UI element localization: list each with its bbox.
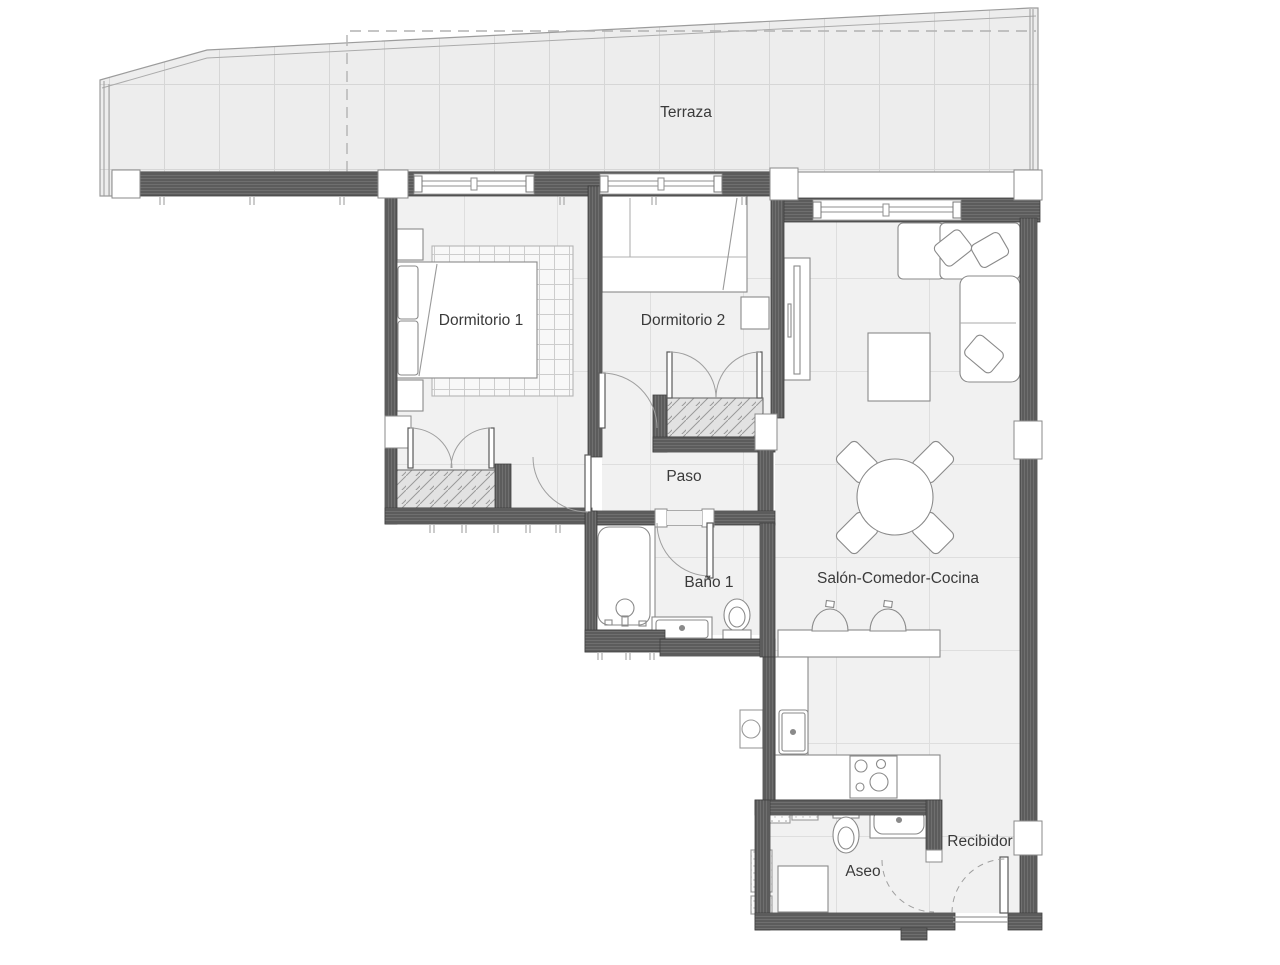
wardrobe-dormitorio-1 [393, 470, 503, 508]
aseo-shower-tray [778, 866, 828, 912]
room-label-dormitorio-2: Dormitorio 2 [641, 312, 725, 329]
wall-aseo-east [926, 800, 942, 855]
room-terraza: Terraza [100, 8, 1038, 196]
room-label-dormitorio-1: Dormitorio 1 [439, 312, 523, 329]
tv-shelf [788, 304, 791, 337]
wardrobe-dormitorio-2 [667, 398, 763, 437]
pillow-1-dormitorio-1 [398, 266, 418, 319]
tv-screen [794, 266, 800, 374]
pillar-north-2 [378, 170, 408, 198]
bar-stool-1-back [826, 600, 835, 607]
wardrobe2-door-leaf-left [667, 352, 672, 398]
pillar-wardrobe1-west [385, 416, 411, 448]
wall-dorm2-east [771, 198, 784, 418]
kitchen-sink-faucet [791, 730, 796, 735]
wall-aseo-north [755, 800, 940, 815]
pillar-north-3 [770, 168, 798, 200]
aseo-faucet [897, 818, 902, 823]
entrance-door-leaf [1000, 857, 1008, 913]
floor-plan-svg: Terraza [0, 0, 1280, 960]
doorway-gap-bano [667, 511, 702, 525]
doorpost-aseo [926, 850, 942, 862]
door-leaf-dormitorio-2 [599, 373, 605, 428]
wall-east [1020, 218, 1037, 913]
wall-south-step [901, 928, 927, 940]
door-leaf-dormitorio-1 [585, 455, 591, 512]
entrance-threshold [953, 917, 1008, 922]
wardrobe1-door-leaf-right [489, 428, 494, 468]
wall-bano-east [760, 523, 775, 657]
pillar-north-1 [112, 170, 140, 198]
wardrobe1-door-leaf-left [408, 428, 413, 468]
bano1-toilet-bowl [724, 599, 750, 631]
pillar-north-4 [1014, 170, 1042, 200]
stove [850, 756, 897, 798]
terrace-floor [100, 8, 1038, 196]
room-label-bano-1: Baño 1 [684, 574, 733, 591]
wall-bano-south-b [660, 639, 775, 656]
wall-south-b [1008, 913, 1042, 930]
window-dormitorio-1 [414, 174, 534, 194]
room-label-paso: Paso [666, 468, 701, 485]
pillow-2-dormitorio-1 [398, 321, 418, 375]
wall-kitchen-west [763, 657, 775, 802]
room-label-terraza: Terraza [660, 104, 712, 121]
door-leaf-bano-1 [707, 523, 713, 578]
aseo-toilet-bowl [833, 817, 859, 853]
bathtub [593, 522, 655, 630]
coffee-table [868, 333, 930, 401]
wall-aseo-west [755, 800, 770, 930]
bano1-faucet [680, 626, 685, 631]
wall-wardrobe1-east [495, 464, 511, 510]
passage-paso-living [755, 414, 777, 450]
bar-stool-2-back [884, 600, 893, 607]
room-label-recibidor: Recibidor [947, 833, 1012, 850]
pillar-east-2 [1014, 821, 1042, 855]
wall-dorm1-south [385, 508, 592, 524]
window-salon [813, 200, 961, 220]
window-dormitorio-2 [600, 174, 722, 194]
wardrobe2-door-leaf-right [757, 352, 762, 398]
wall-south-a [755, 913, 955, 930]
room-label-aseo: Aseo [845, 863, 880, 880]
dining-table [857, 459, 933, 535]
nightstand-dormitorio-2 [741, 297, 769, 329]
wall-dorm1-west [385, 192, 397, 524]
nightstand-2-dormitorio-1 [397, 380, 423, 411]
nightstand-1-dormitorio-1 [397, 229, 423, 260]
kitchen-island [778, 630, 940, 657]
room-label-salon-comedor-cocina: Salón-Comedor-Cocina [817, 570, 979, 587]
floor-plan-canvas: Terraza [0, 0, 1280, 960]
pillar-east-1 [1014, 421, 1042, 459]
wall-bano-south-a [585, 630, 665, 652]
